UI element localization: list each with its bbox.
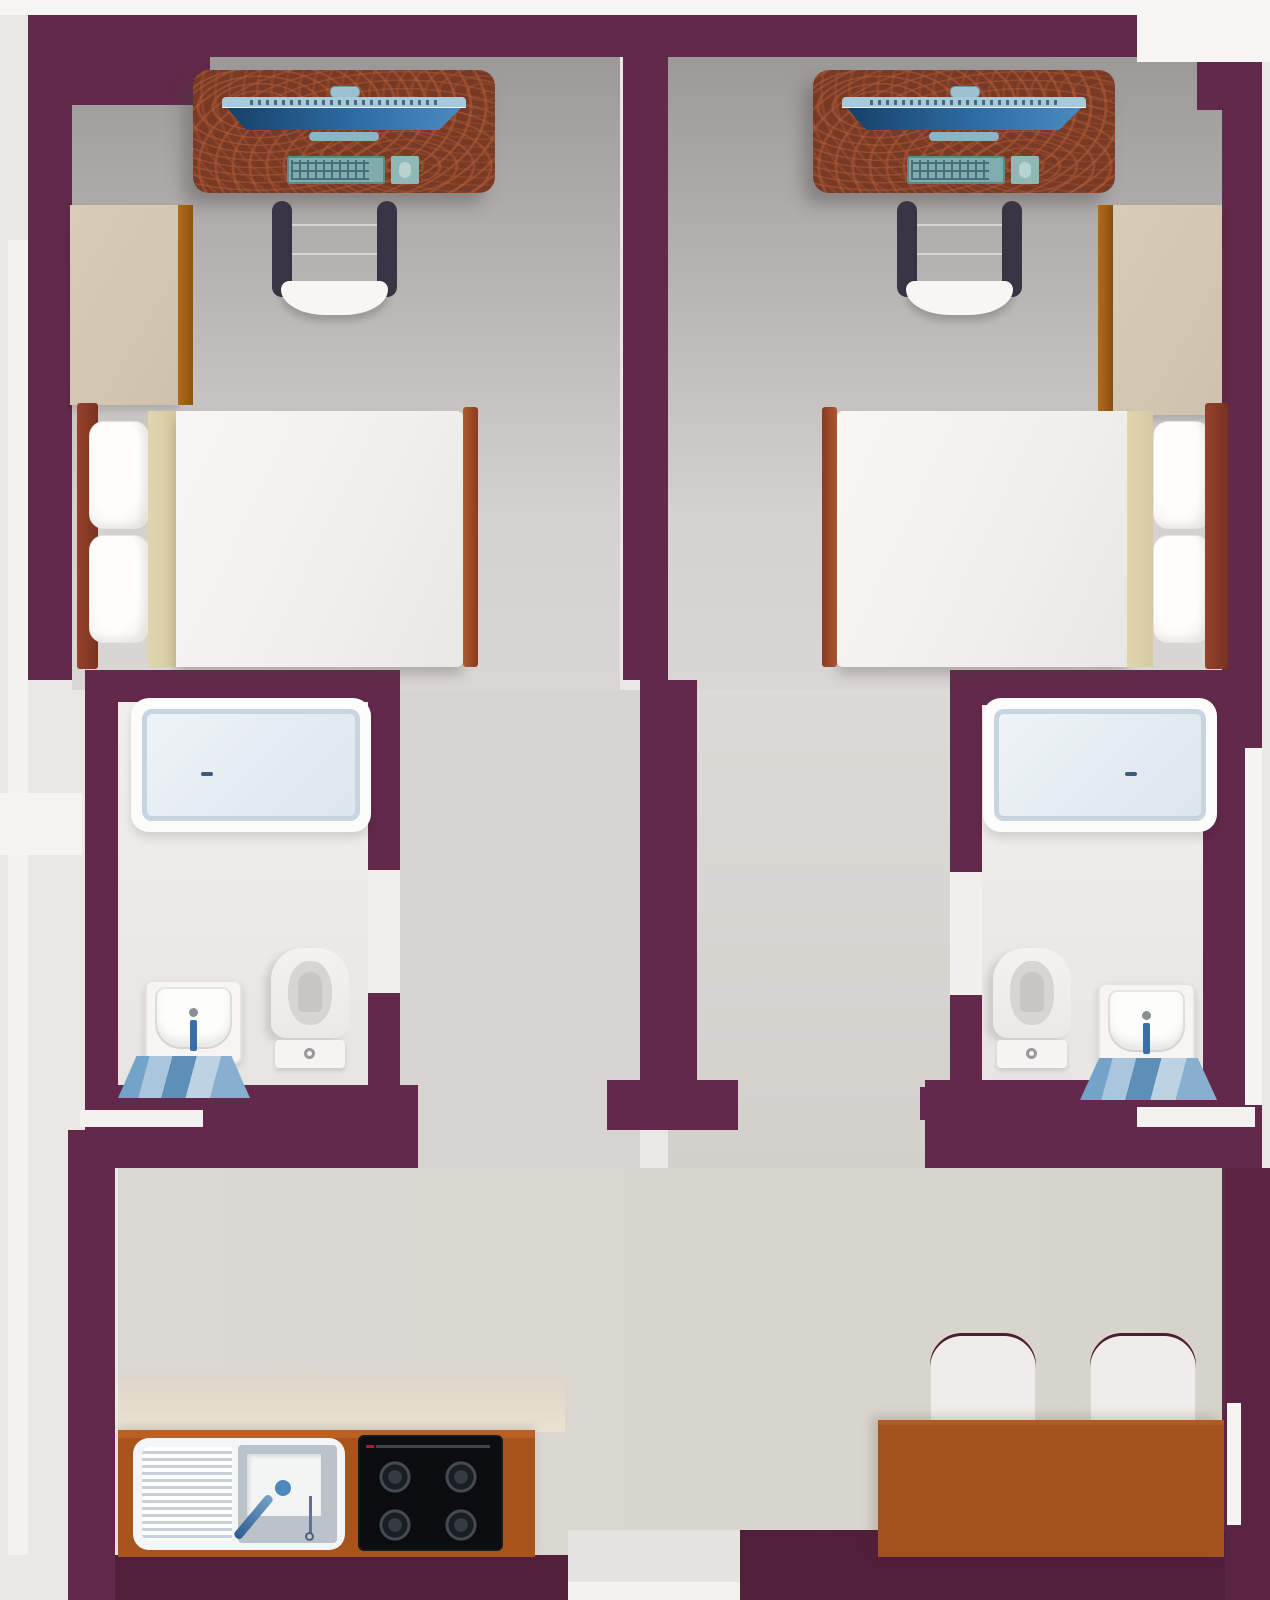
right-bed-blanket-band [1127,411,1153,667]
stove-indicator-icon [366,1445,374,1448]
stove-burner-1 [377,1459,413,1495]
right-washbasin [1098,983,1195,1067]
right-shower [983,698,1217,832]
left-wardrobe-trim [178,205,193,405]
left-outer-wall [28,57,72,680]
dining-chair-1 [930,1333,1036,1422]
right-bath-mat [1080,1058,1217,1100]
right-toilet-flush-button-icon [1026,1048,1037,1059]
left-entry-notch [0,793,82,855]
left-shower [131,698,371,832]
corridor-wall-upper [623,57,668,680]
bottom-right-white-notch [1137,1107,1255,1127]
right-bed-pillow-2 [1153,535,1210,643]
right-bathroom-door-notch [950,872,982,995]
corridor-wall-lower [640,680,697,1080]
top-white-band [0,0,1270,15]
floor-plan [0,0,1270,1600]
left-bath-mat [118,1056,250,1098]
left-toilet-seat [288,961,332,1025]
kitchen-utensil-icon [309,1496,312,1534]
right-monitor-stand [929,132,999,141]
left-passage-floor [400,690,640,1170]
right-bed-footboard [822,407,837,667]
left-bathroom-wall-right-lower [368,993,400,1098]
stove-burner-4 [443,1507,479,1543]
right-toilet-lid [1020,972,1044,1012]
bottom-left-white-notch [80,1110,203,1127]
right-bed-duvet [837,411,1127,667]
left-white-strip [8,240,28,1555]
living-left-wall [68,1130,115,1600]
right-monitor-top [842,97,1086,108]
left-toilet-lid [298,972,322,1012]
left-bed-duvet [176,411,463,667]
right-bed [822,403,1228,680]
left-bed-pillow-1 [89,421,149,529]
left-mousepad [391,156,419,184]
left-monitor-screen [222,108,466,130]
stove-burner-2 [443,1459,479,1495]
left-washbasin-drain-icon [189,1008,198,1017]
right-lower-wall [1225,1168,1270,1600]
right-white-sliver [1227,1403,1241,1525]
kitchen-drainboard [142,1447,232,1541]
top-wall [28,15,1242,57]
right-shower-tray [994,709,1206,821]
left-chair-back [281,281,388,315]
right-toilet-seat [1010,961,1054,1025]
kitchen-floor-patch [118,1375,565,1432]
right-mousepad [1011,156,1039,184]
right-keyboard [907,156,1005,184]
right-bathroom-wall-left-upper [950,678,982,872]
right-bathroom-wall-left-lower [950,995,982,1087]
right-toilet-bowl [993,948,1071,1038]
right-bed-headboard [1205,403,1228,669]
left-bathroom-door-notch [368,870,400,993]
stove-burner-3 [377,1507,413,1543]
right-chair-back [906,281,1013,315]
left-shower-tray [142,709,360,821]
top-right-white-notch [1137,0,1270,62]
left-monitor-stand [309,132,379,141]
left-wardrobe [70,205,178,405]
kitchen-sink [133,1438,345,1550]
left-office-chair [272,197,397,315]
left-shower-drain-icon [201,772,213,776]
left-washbasin-faucet-icon [190,1020,197,1051]
left-washbasin [145,980,242,1064]
right-shower-drain-icon [1125,772,1137,776]
right-bed-pillow-1 [1153,421,1210,529]
bottom-left-wall [115,1555,568,1600]
kitchen-faucet-head-icon [275,1480,291,1496]
dining-table [878,1420,1224,1557]
left-bed-pillow-2 [89,535,149,643]
left-monitor-top [222,97,466,108]
left-bed [77,403,478,680]
right-monitor-screen [842,108,1086,130]
left-desk [193,70,495,193]
left-bed-blanket-band [148,411,176,667]
dining-chair-2 [1090,1333,1196,1422]
kitchen-utensil-ring-icon [305,1532,314,1541]
right-washbasin-drain-icon [1142,1011,1151,1020]
left-toilet-bowl [271,948,349,1038]
right-white-strip [1245,748,1262,1105]
left-bed-footboard [463,407,478,667]
right-wardrobe [1113,205,1222,415]
right-washbasin-faucet-icon [1143,1023,1150,1054]
left-chair-seat [292,197,377,287]
kitchen-stove [358,1435,503,1551]
right-office-chair [897,197,1022,315]
right-desk [813,70,1115,193]
right-chair-seat [917,197,1002,287]
left-toilet-flush-button-icon [304,1048,315,1059]
left-toilet-cistern [275,1040,345,1068]
entry-door-white-strip [568,1582,740,1600]
stove-control-line [376,1445,490,1448]
corridor-wall-foot [607,1080,738,1130]
left-keyboard [287,156,385,184]
right-wardrobe-trim [1098,205,1113,415]
left-toilet [271,948,349,1068]
right-toilet-cistern [997,1040,1067,1068]
left-bathroom-wall-right-upper [368,702,400,870]
right-toilet [993,948,1071,1068]
